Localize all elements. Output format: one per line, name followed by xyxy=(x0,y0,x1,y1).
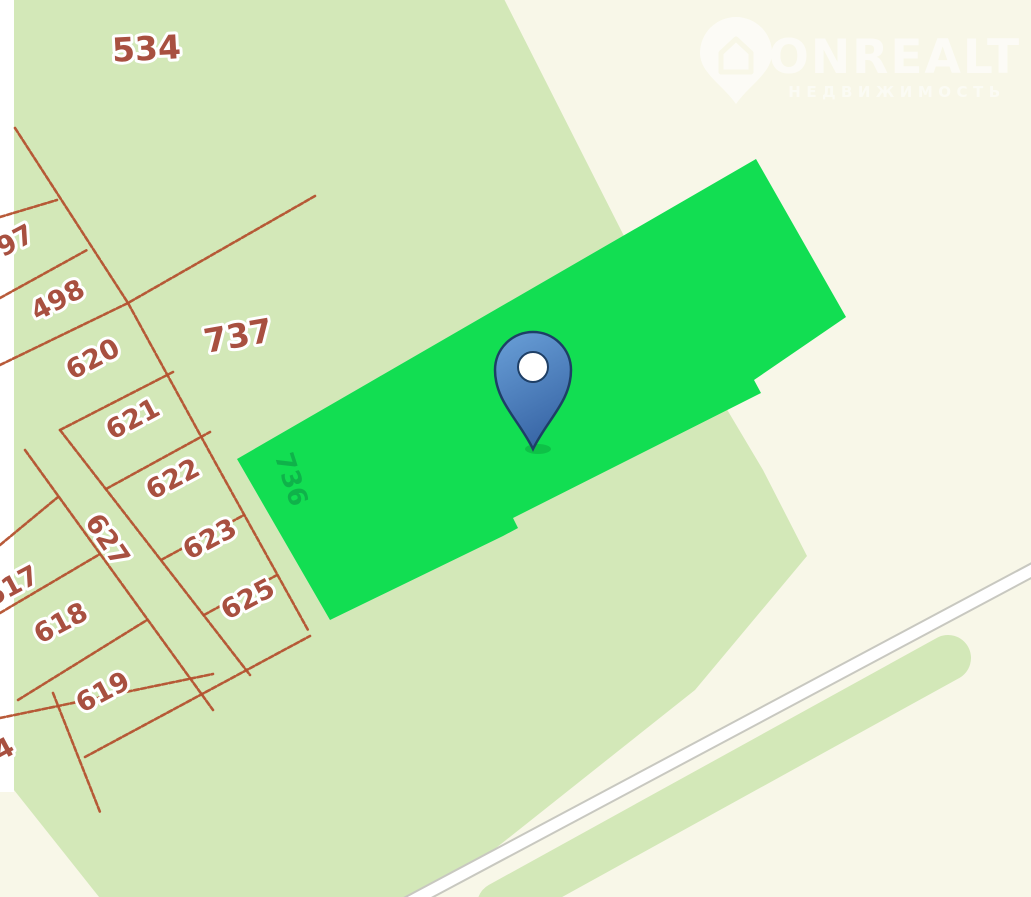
map-canvas[interactable]: 5344974986206216226236256276176186194737… xyxy=(0,0,1031,897)
map-viewport[interactable]: 5344974986206216226236256276176186194737… xyxy=(0,0,1031,897)
watermark-subtitle: НЕДВИЖИМОСТЬ xyxy=(788,83,1005,101)
pin-shadow xyxy=(525,444,551,454)
watermark-brand: ONREALT xyxy=(769,30,1021,85)
pin-center-dot xyxy=(518,352,548,382)
map-tile-edge xyxy=(0,0,14,792)
parcel-number-label: 534 xyxy=(111,27,182,70)
